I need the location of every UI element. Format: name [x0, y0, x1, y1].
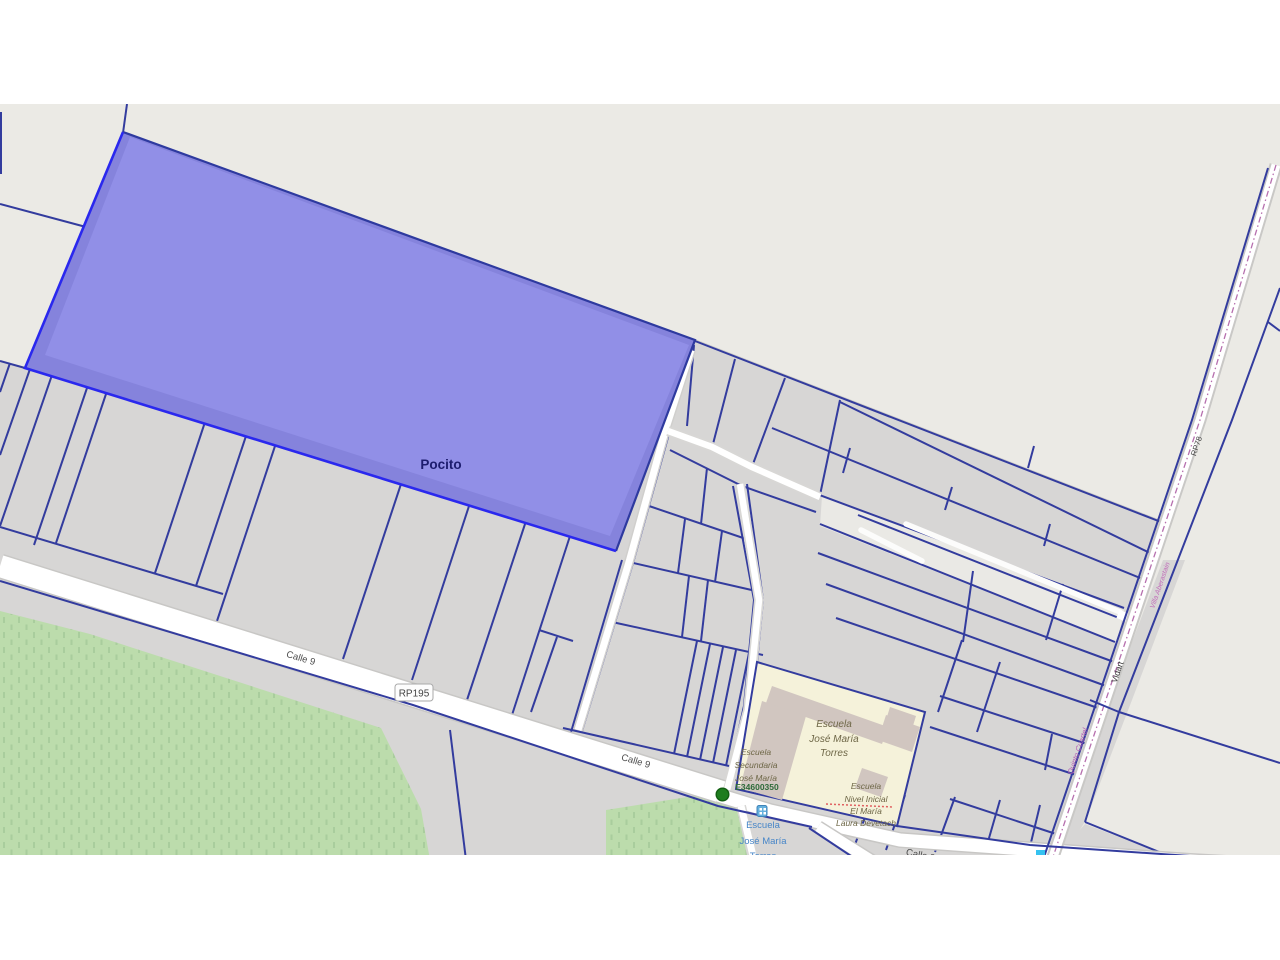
- svg-text:RP195: RP195: [399, 689, 430, 700]
- svg-text:Laura Devetach: Laura Devetach: [836, 818, 896, 828]
- svg-text:José María: José María: [740, 836, 788, 847]
- svg-text:Nivel Inicial: Nivel Inicial: [845, 794, 889, 804]
- svg-text:Secundaria: Secundaria: [734, 760, 777, 770]
- svg-text:Escuela: Escuela: [746, 820, 781, 831]
- svg-text:El María: El María: [850, 806, 882, 816]
- svg-text:Escuela: Escuela: [851, 781, 882, 791]
- svg-text:José María: José María: [808, 734, 859, 745]
- svg-text:Escuela: Escuela: [816, 719, 852, 730]
- svg-text:Torres: Torres: [820, 748, 848, 759]
- svg-text:E34600350: E34600350: [735, 782, 779, 792]
- svg-text:Escuela: Escuela: [741, 747, 772, 757]
- svg-text:Pocito: Pocito: [420, 457, 461, 472]
